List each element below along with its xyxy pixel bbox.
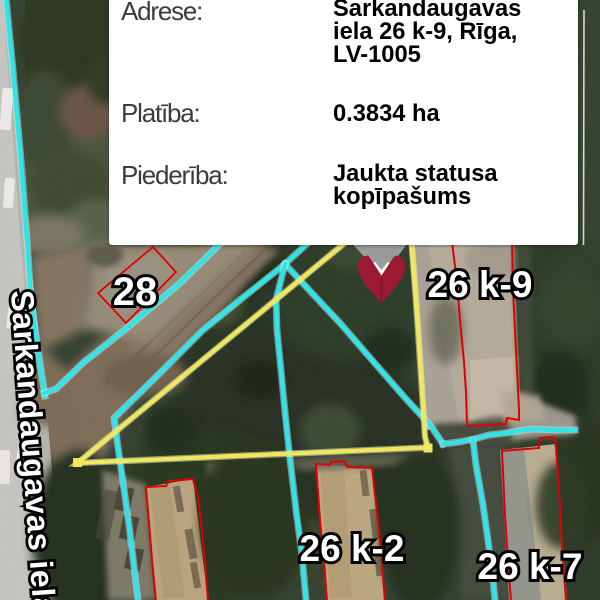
svg-text:26 k-7: 26 k-7: [478, 546, 583, 587]
svg-text:28: 28: [113, 270, 158, 314]
svg-text:26 k-9: 26 k-9: [428, 264, 533, 305]
svg-text:26 k-2: 26 k-2: [300, 528, 405, 569]
